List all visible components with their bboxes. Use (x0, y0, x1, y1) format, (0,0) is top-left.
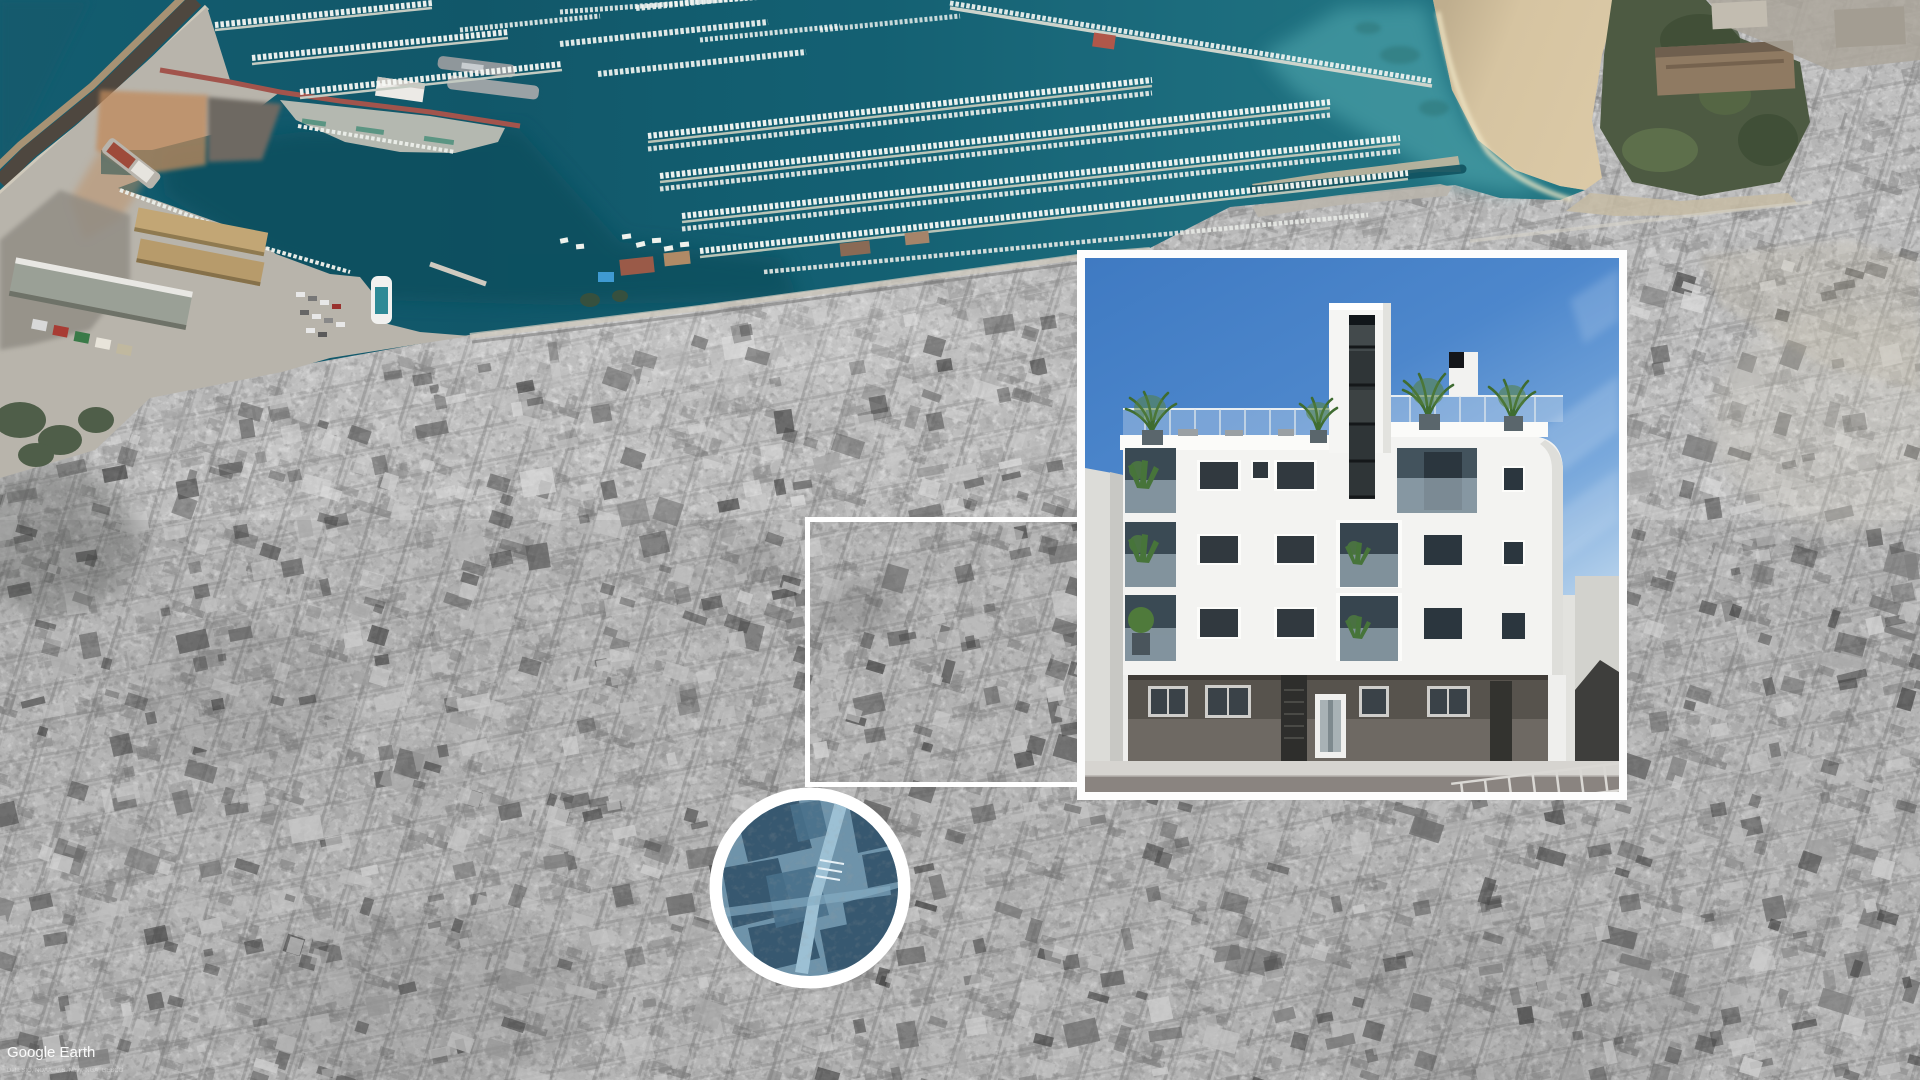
svg-text:Google Earth: Google Earth (7, 1044, 95, 1061)
svg-text:Data SIO, NOAA, U.S. Navy, NGA: Data SIO, NOAA, U.S. Navy, NGA, GEBCO (7, 1068, 124, 1074)
